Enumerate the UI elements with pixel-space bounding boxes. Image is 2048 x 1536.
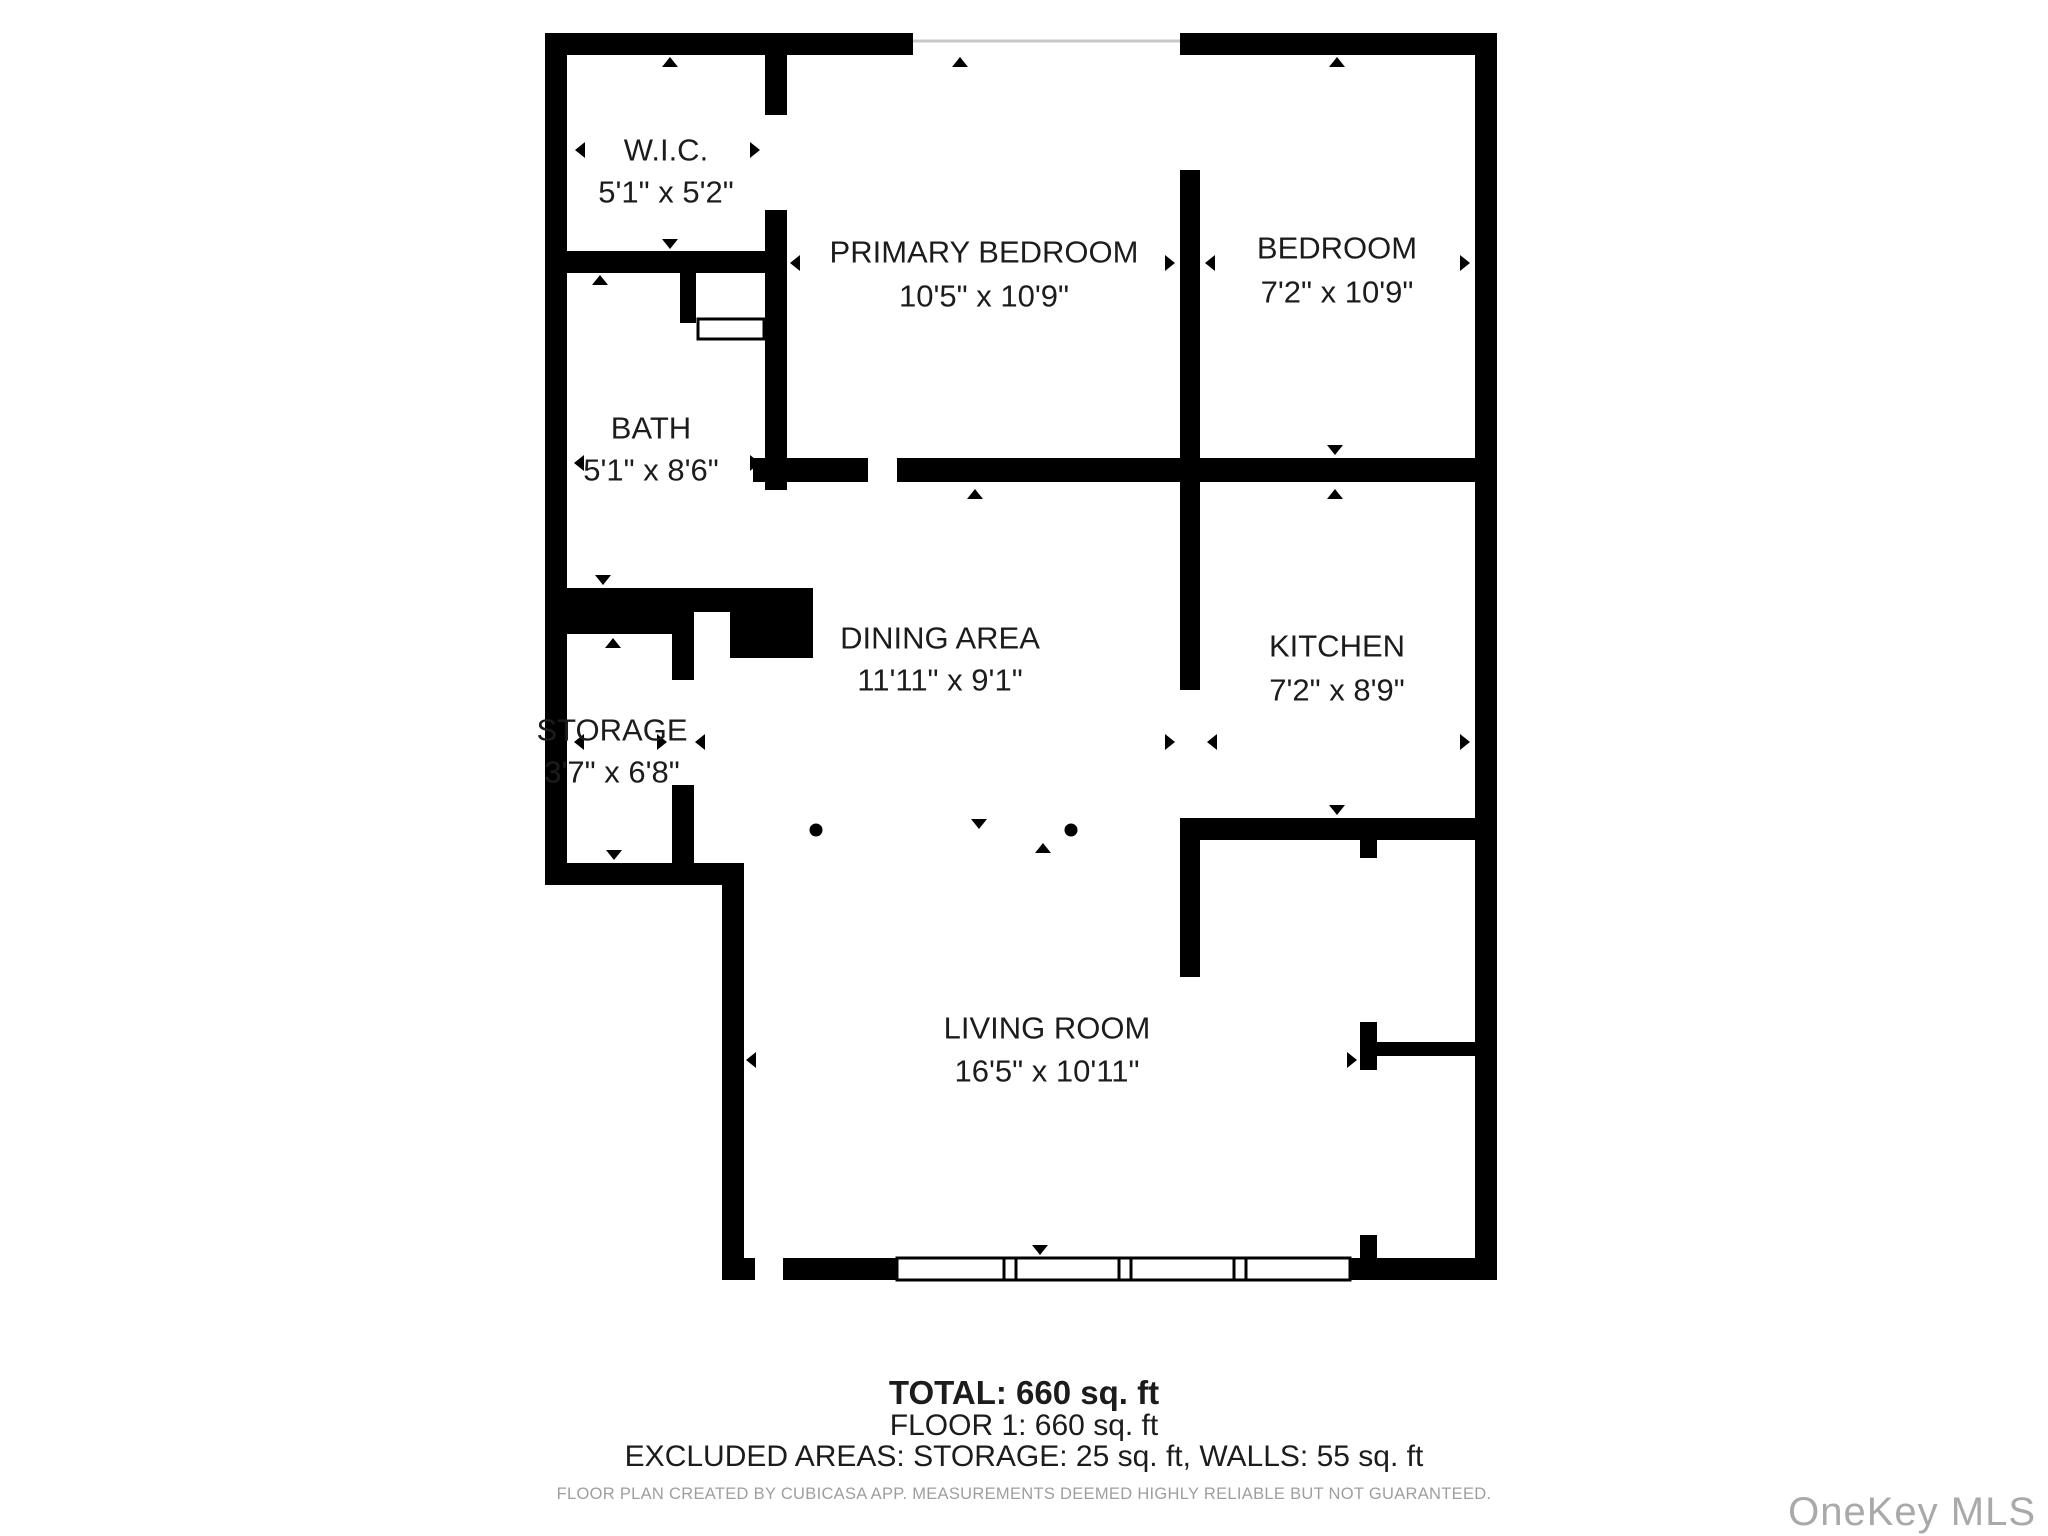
dimension-arrow-icon [1032,1245,1048,1255]
floor-plan: W.I.C.5'1" x 5'2"PRIMARY BEDROOM10'5" x … [0,0,2048,1536]
room-dimensions-storage: 3'7" x 6'8" [544,755,680,790]
room-label-kitchen: KITCHEN [1269,629,1405,664]
room-dimensions-kitchen: 7'2" x 8'9" [1269,673,1405,708]
wall [765,33,787,115]
room-dimensions-dining_area: 11'11" x 9'1" [857,663,1022,698]
wall [1180,482,1200,690]
wall [672,785,694,863]
wall [722,1258,755,1280]
dimension-arrow-icon [605,638,621,648]
room-label-living_room: LIVING ROOM [944,1011,1151,1046]
room-label-wic: W.I.C. [624,133,708,168]
room-dimensions-primary_bedroom: 10'5" x 10'9" [899,279,1069,314]
floor-area-text: FLOOR 1: 660 sq. ft [0,1409,2048,1443]
dimension-arrow-icon [595,575,611,585]
dimension-arrow-icon [1460,734,1470,750]
dimension-arrow-icon [1327,445,1343,455]
mls-watermark: OneKey MLS [1788,1490,2036,1535]
room-divider-dot-icon [810,824,823,837]
dimension-arrow-icon [967,489,983,499]
room-label-bedroom: BEDROOM [1257,231,1417,266]
dimension-arrow-icon [746,1052,756,1068]
wall [753,458,868,482]
wall [1180,818,1475,840]
excluded-areas-text: EXCLUDED AREAS: STORAGE: 25 sq. ft, WALL… [0,1440,2048,1474]
dimension-arrow-icon [1205,255,1215,271]
wall [1180,170,1200,458]
window-icon [897,1258,1350,1280]
wall [730,588,813,658]
dimension-arrow-icon [1329,805,1345,815]
room-dimensions-bedroom: 7'2" x 10'9" [1261,275,1414,310]
total-area-text: TOTAL: 660 sq. ft [0,1374,2048,1412]
dimension-arrow-icon [1347,1052,1357,1068]
wall [545,612,694,634]
wall [1475,33,1497,1280]
floor-plan-page: W.I.C.5'1" x 5'2"PRIMARY BEDROOM10'5" x … [0,0,2048,1536]
dimension-arrow-icon [1165,255,1175,271]
wall [1350,1258,1497,1280]
dimension-arrow-icon [1165,734,1175,750]
dimension-arrow-icon [662,239,678,249]
wall [897,458,1497,482]
wall [1360,840,1377,858]
dimension-arrow-icon [575,142,585,158]
dimension-arrow-icon [1207,734,1217,750]
room-dimensions-living_room: 16'5" x 10'11" [955,1054,1140,1089]
wall [1360,1235,1377,1258]
room-label-storage: STORAGE [536,713,687,748]
dimension-arrow-icon [971,819,987,829]
wall [1377,1042,1475,1056]
room-dimensions-wic: 5'1" x 5'2" [598,175,734,210]
wall [545,251,787,273]
room-dimensions-bath: 5'1" x 8'6" [583,453,719,488]
room-label-primary_bedroom: PRIMARY BEDROOM [830,235,1139,270]
dimension-arrow-icon [790,255,800,271]
room-label-bath: BATH [611,411,691,446]
closet-door-icon [698,319,764,339]
wall [783,1258,897,1280]
dimension-arrow-icon [606,850,622,860]
dimension-arrow-icon [592,275,608,285]
room-label-dining_area: DINING AREA [840,621,1040,656]
wall [680,273,696,323]
wall [722,863,744,1280]
wall [1180,33,1497,55]
room-divider-dot-icon [1065,824,1078,837]
dimension-arrow-icon [750,142,760,158]
wall [1360,1022,1377,1070]
dimension-arrow-icon [1327,489,1343,499]
dimension-arrow-icon [695,734,705,750]
dimension-arrow-icon [952,57,968,67]
wall [545,33,913,55]
wall [1180,840,1200,977]
wall [672,634,694,680]
wall [545,863,744,885]
dimension-arrow-icon [1329,57,1345,67]
dimension-arrow-icon [662,57,678,67]
disclaimer-text: FLOOR PLAN CREATED BY CUBICASA APP. MEAS… [0,1485,2048,1504]
dimension-arrow-icon [1460,255,1470,271]
dimension-arrow-icon [1035,843,1051,853]
wall [765,273,787,490]
